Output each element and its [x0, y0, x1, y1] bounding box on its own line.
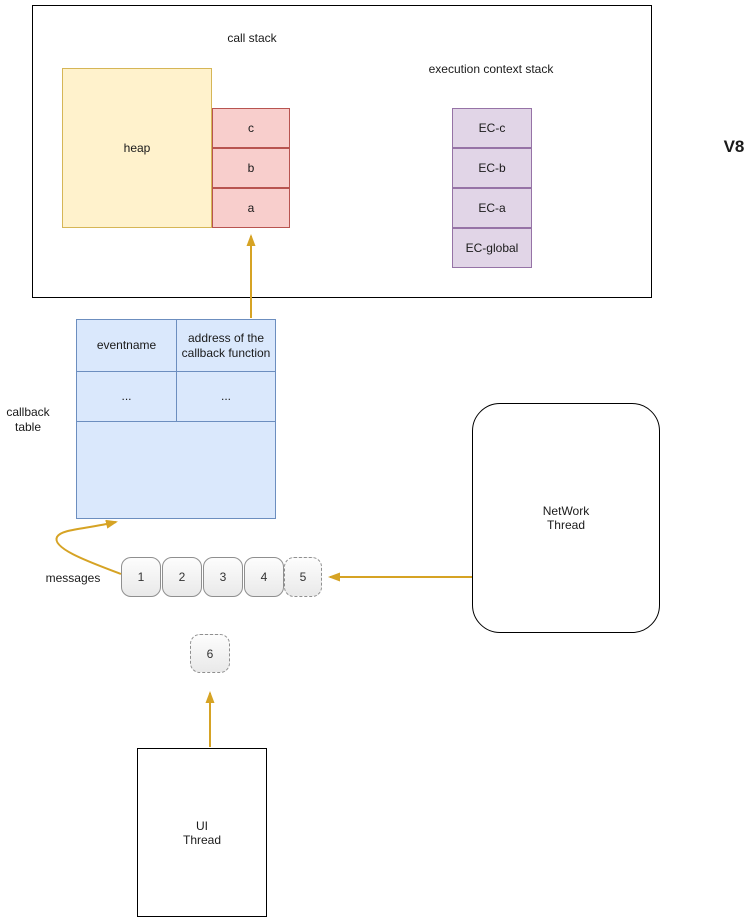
callback-table-row: ... ...	[77, 372, 275, 422]
stack-frame-c: c	[212, 108, 290, 148]
network-thread-box: NetWork Thread	[472, 403, 660, 633]
message-box-4: 4	[244, 557, 284, 597]
ui-thread-label: UI Thread	[183, 819, 221, 847]
callback-table: eventname address of the callback functi…	[76, 319, 276, 519]
ui-thread-box: UI Thread	[137, 748, 267, 917]
header-cell-callback-address: address of the callback function	[177, 320, 275, 371]
arrow-queue-to-callback-table	[56, 522, 121, 574]
execution-context-ec-b: EC-b	[452, 148, 532, 188]
callback-table-header-row: eventname address of the callback functi…	[77, 320, 275, 372]
cell-eventname-value: ...	[77, 372, 177, 421]
heap-label: heap	[124, 141, 151, 155]
cell-callback-address-value: ...	[177, 372, 275, 421]
message-number: 5	[300, 570, 307, 584]
message-box-1: 1	[121, 557, 161, 597]
stack-frame-a: a	[212, 188, 290, 228]
stack-frame-label: a	[248, 201, 255, 215]
stack-frame-label: c	[248, 121, 254, 135]
event-loop-diagram: call stack execution context stack V8 he…	[0, 0, 752, 919]
execution-context-ec-a: EC-a	[452, 188, 532, 228]
header-cell-eventname: eventname	[77, 320, 177, 371]
message-box-6-incoming: 6	[190, 634, 230, 673]
callback-table-empty-area	[77, 422, 275, 518]
execution-context-label: EC-b	[478, 161, 505, 175]
message-box-2: 2	[162, 557, 202, 597]
network-thread-label: NetWork Thread	[543, 504, 589, 532]
message-number: 2	[179, 570, 186, 584]
execution-context-stack-title: execution context stack	[406, 62, 576, 77]
message-number: 3	[220, 570, 227, 584]
call-stack-title: call stack	[197, 31, 307, 46]
heap-box: heap	[62, 68, 212, 228]
execution-context-ec-c: EC-c	[452, 108, 532, 148]
v8-label: V8	[716, 136, 752, 157]
callback-table-label: callback table	[0, 405, 56, 435]
stack-frame-label: b	[248, 161, 255, 175]
message-number: 4	[261, 570, 268, 584]
message-box-5-pending: 5	[284, 557, 322, 597]
execution-context-label: EC-global	[466, 241, 519, 255]
message-number: 1	[138, 570, 145, 584]
message-box-3: 3	[203, 557, 243, 597]
execution-context-ec-global: EC-global	[452, 228, 532, 268]
execution-context-label: EC-a	[478, 201, 505, 215]
execution-context-label: EC-c	[479, 121, 506, 135]
stack-frame-b: b	[212, 148, 290, 188]
message-number: 6	[207, 647, 214, 661]
messages-label: messages	[38, 571, 108, 586]
